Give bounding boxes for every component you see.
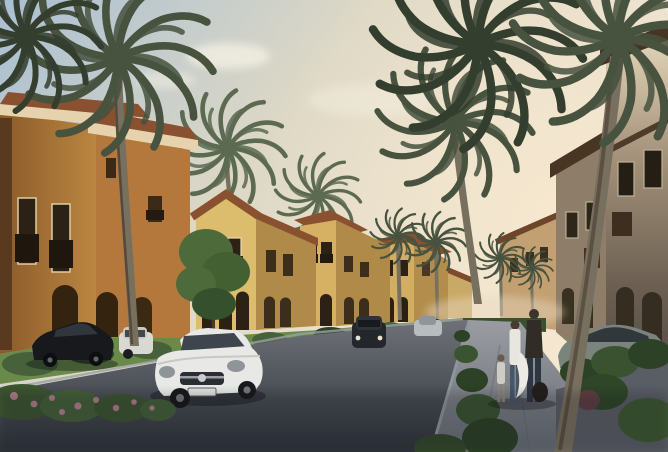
head — [529, 309, 539, 319]
scene-canvas — [0, 0, 668, 452]
jacket — [525, 320, 543, 358]
arch — [264, 297, 275, 329]
arch — [280, 298, 291, 328]
balcony-railing — [15, 234, 39, 262]
wheel-hub — [93, 356, 98, 361]
car-cabin — [419, 316, 436, 325]
window — [566, 212, 578, 238]
shrub — [456, 368, 488, 392]
main-wall — [0, 112, 96, 354]
window — [283, 254, 293, 276]
shrub — [454, 330, 470, 342]
headlight — [356, 336, 361, 341]
shadow-edge — [0, 118, 12, 350]
villa-1 — [0, 92, 198, 354]
window — [344, 256, 353, 272]
window — [644, 150, 662, 188]
arch — [562, 288, 574, 324]
balcony — [146, 210, 164, 220]
architectural-rendering — [0, 0, 668, 452]
tower-window — [106, 158, 116, 178]
tree-foliage — [192, 288, 236, 320]
arch — [320, 294, 332, 326]
arch — [236, 292, 249, 330]
headlight — [227, 360, 245, 372]
mercedes-star — [198, 374, 206, 382]
arch — [344, 297, 354, 324]
balcony — [320, 254, 333, 263]
headlight — [378, 336, 383, 341]
wheel-hub — [47, 357, 52, 362]
window — [618, 162, 634, 196]
head — [497, 354, 504, 361]
window — [360, 262, 369, 277]
bottom-vignette — [0, 392, 668, 452]
shrub — [454, 345, 478, 363]
body — [497, 362, 505, 384]
dark-driving-car — [352, 316, 386, 348]
windshield — [358, 320, 380, 327]
wheel — [123, 349, 133, 359]
head — [511, 321, 520, 330]
balcony-railing — [49, 240, 73, 268]
wood-balcony — [612, 212, 632, 236]
window — [266, 250, 276, 272]
headlight — [159, 366, 175, 378]
